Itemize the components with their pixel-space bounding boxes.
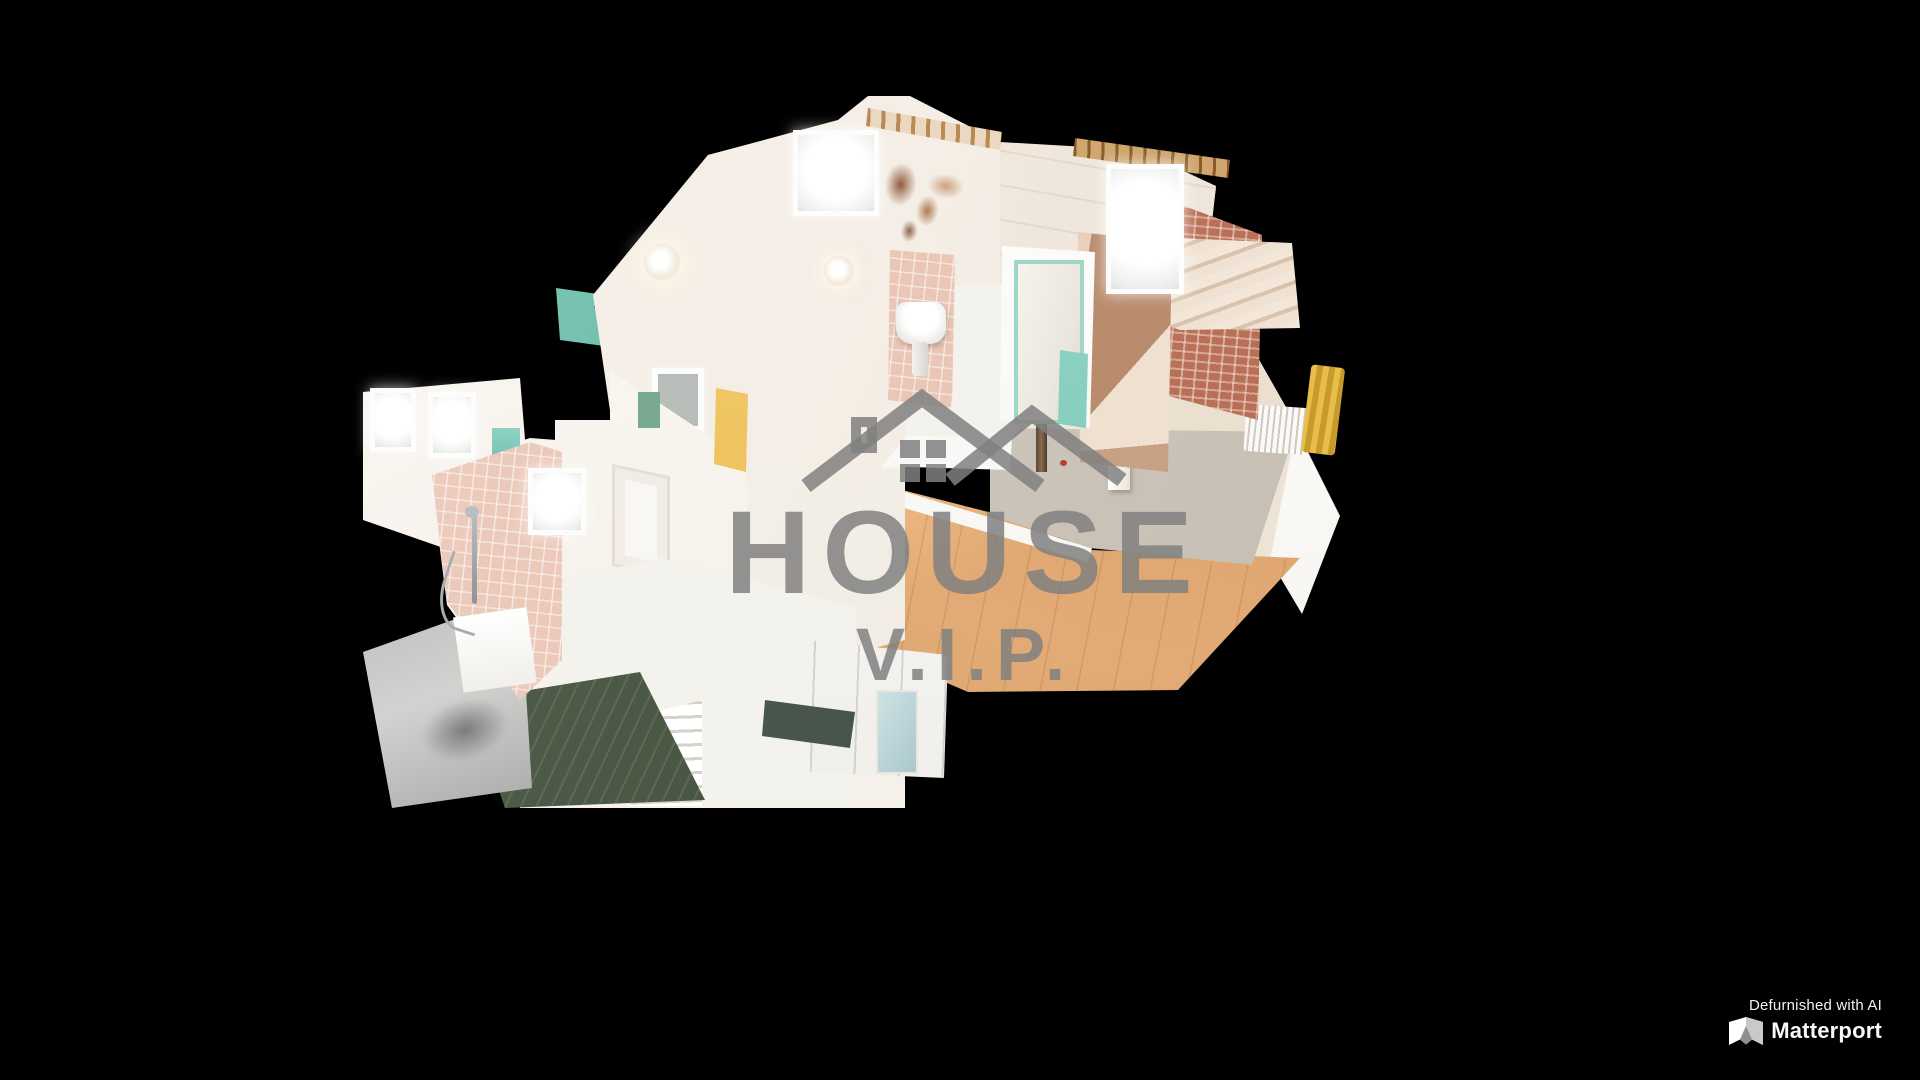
matterport-viewer: HOUSE V.I.P. Defurnished with AI Matterp…: [0, 0, 1920, 1080]
wall-sconce-light-2: [824, 256, 854, 286]
shower-window: [528, 468, 586, 535]
left-wing-window-1: [370, 388, 416, 452]
top-window: [793, 130, 879, 216]
yellow-curtain: [1301, 364, 1345, 455]
shower-head: [465, 506, 479, 518]
bathroom-sink: [896, 302, 946, 344]
defurnished-ai-label: Defurnished with AI: [1729, 997, 1882, 1014]
attic-window: [1106, 164, 1184, 294]
left-wing-window-2: [428, 392, 476, 458]
dollhouse-3d-view[interactable]: HOUSE V.I.P.: [0, 0, 1920, 1080]
fridge-teal-door: [876, 690, 918, 774]
green-door-small: [638, 392, 660, 428]
wall-sconce-light: [644, 244, 680, 280]
matterport-wordmark: Matterport: [1771, 1018, 1882, 1044]
branding: Defurnished with AI Matterport: [1729, 997, 1882, 1045]
matterport-m-icon: [1729, 1017, 1763, 1045]
sink-pedestal: [912, 342, 928, 376]
red-floor-dot: [1060, 460, 1067, 466]
